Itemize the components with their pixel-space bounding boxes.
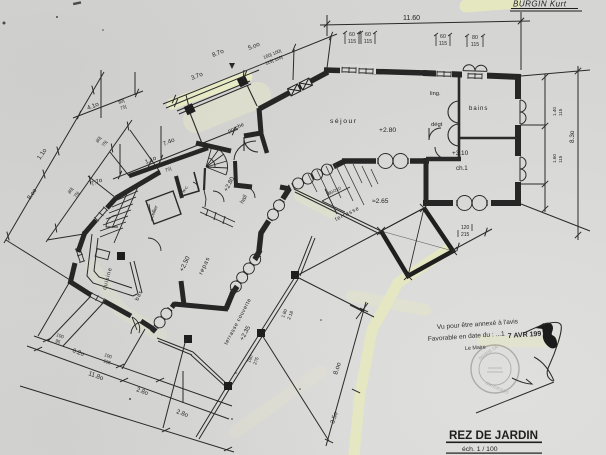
svg-text:dégt: dégt <box>431 122 443 128</box>
svg-text:115: 115 <box>348 39 356 45</box>
svg-text:80: 80 <box>472 35 478 41</box>
svg-text:215: 215 <box>461 232 470 238</box>
svg-text:115: 115 <box>558 108 563 116</box>
svg-text:REZ DE JARDIN: REZ DE JARDIN <box>449 428 538 442</box>
svg-text:ling.: ling. <box>430 91 441 97</box>
svg-text:+2.80: +2.80 <box>379 127 396 134</box>
svg-text:115: 115 <box>471 42 479 48</box>
svg-text:ch.1: ch.1 <box>456 165 468 172</box>
svg-text:115: 115 <box>558 155 563 163</box>
svg-text:1.60: 1.60 <box>552 154 557 163</box>
svg-text:séjour: séjour <box>330 118 358 125</box>
svg-text:60: 60 <box>440 34 446 40</box>
svg-text:BURGIN Kurt: BURGIN Kurt <box>513 0 567 9</box>
svg-text:éch. 1 / 100: éch. 1 / 100 <box>462 446 498 453</box>
svg-text:115: 115 <box>364 39 372 45</box>
svg-text:60: 60 <box>349 32 355 38</box>
svg-text:115: 115 <box>439 41 447 47</box>
svg-text:1.40: 1.40 <box>552 107 557 116</box>
svg-text:+3.10: +3.10 <box>452 150 469 157</box>
svg-text:8.3o: 8.3o <box>569 130 576 143</box>
svg-text:120: 120 <box>461 225 470 231</box>
svg-text:≈2.65: ≈2.65 <box>372 198 389 205</box>
svg-text:bains: bains <box>469 106 488 112</box>
svg-text:11.60: 11.60 <box>403 15 420 22</box>
svg-text:60: 60 <box>365 32 371 38</box>
